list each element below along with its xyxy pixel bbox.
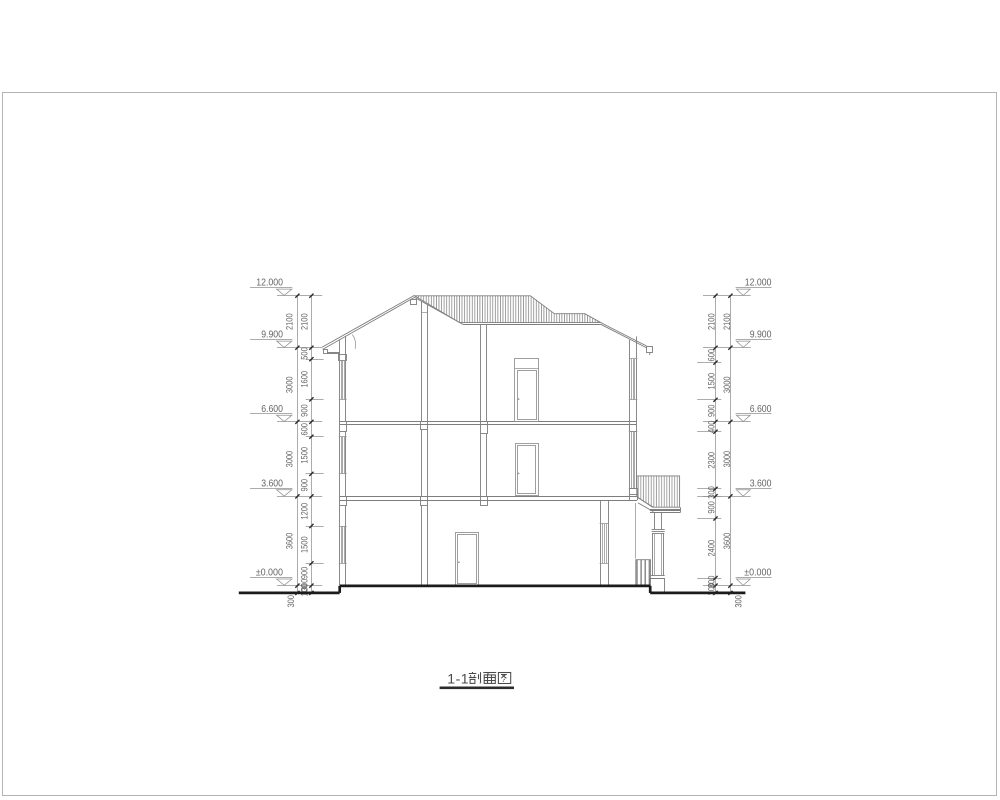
svg-text:6.600: 6.600 <box>750 404 772 415</box>
svg-text:900: 900 <box>299 404 310 417</box>
svg-text:900: 900 <box>707 405 718 418</box>
svg-text:2400: 2400 <box>707 540 718 557</box>
svg-text:2300: 2300 <box>707 452 718 469</box>
svg-text:500: 500 <box>299 347 310 360</box>
svg-text:12.000: 12.000 <box>745 278 772 289</box>
svg-text:±0.000: ±0.000 <box>256 568 284 579</box>
svg-text:3600: 3600 <box>722 533 733 550</box>
svg-text:3000: 3000 <box>285 377 296 394</box>
svg-text:600: 600 <box>707 349 718 362</box>
svg-text:900: 900 <box>707 501 718 514</box>
svg-text:2100: 2100 <box>285 313 296 330</box>
svg-text:2100: 2100 <box>722 313 733 330</box>
svg-text:12.000: 12.000 <box>256 278 283 289</box>
svg-text:400: 400 <box>707 421 718 434</box>
svg-text:3.600: 3.600 <box>261 478 283 489</box>
svg-text:3000: 3000 <box>285 451 296 468</box>
svg-text:1500: 1500 <box>299 447 310 464</box>
svg-text:1500: 1500 <box>299 536 310 553</box>
svg-text:2100: 2100 <box>707 313 718 330</box>
svg-text:3000: 3000 <box>722 377 733 394</box>
svg-text:±0.000: ±0.000 <box>744 568 772 579</box>
svg-text:6.600: 6.600 <box>261 404 283 415</box>
svg-text:900: 900 <box>299 567 310 580</box>
svg-text:2100: 2100 <box>299 313 310 330</box>
svg-text:3.600: 3.600 <box>750 478 772 489</box>
svg-text:3600: 3600 <box>285 533 296 550</box>
svg-text:1200: 1200 <box>299 503 310 520</box>
svg-text:1-1: 1-1 <box>447 670 469 686</box>
svg-text:3000: 3000 <box>722 451 733 468</box>
svg-text:1600: 1600 <box>299 371 310 388</box>
svg-text:900: 900 <box>299 479 310 492</box>
svg-text:100: 100 <box>299 584 310 597</box>
svg-text:1500: 1500 <box>707 373 718 390</box>
svg-text:300: 300 <box>734 595 745 608</box>
svg-text:300: 300 <box>707 486 718 499</box>
svg-text:300: 300 <box>286 595 297 608</box>
svg-text:600: 600 <box>299 423 310 436</box>
svg-text:9.900: 9.900 <box>750 330 772 341</box>
svg-text:9.900: 9.900 <box>261 330 283 341</box>
